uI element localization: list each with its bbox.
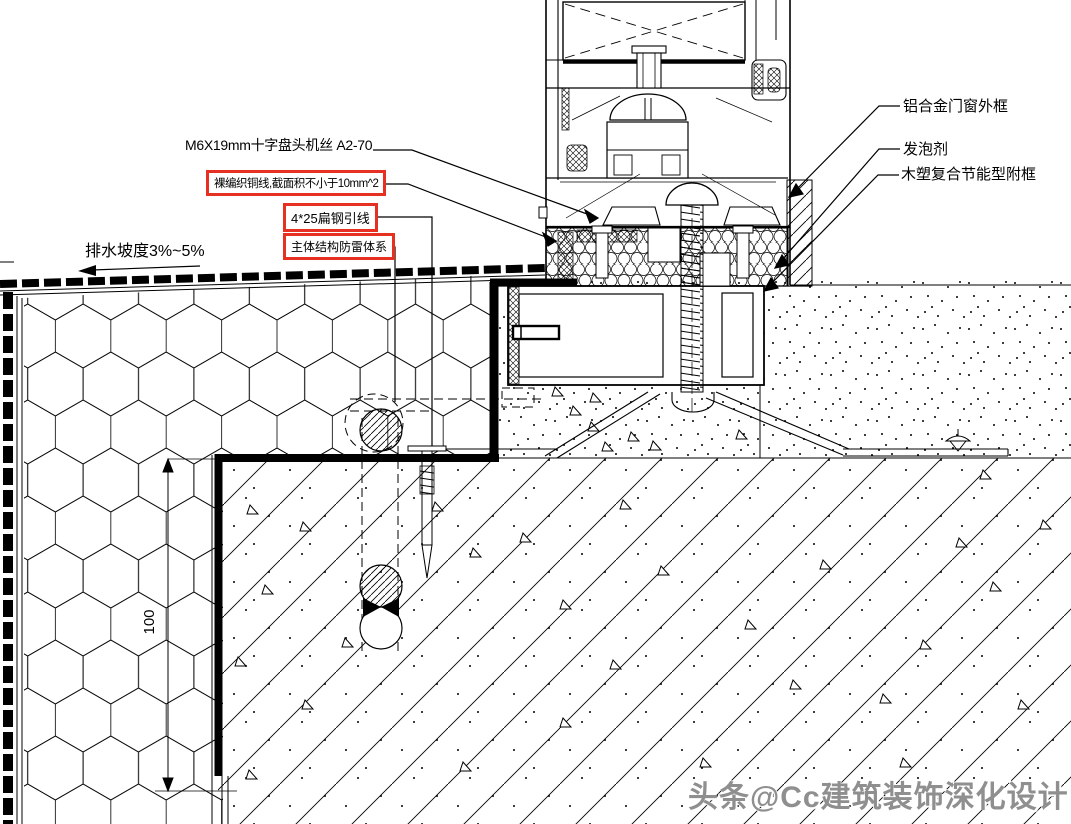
- callout-flat-steel-highlight: 4*25扁钢引线: [283, 203, 378, 232]
- callout-foam: 发泡剂: [903, 141, 948, 158]
- slope-arrow: [78, 265, 200, 276]
- watermark-text: 头条@Cc建筑装饰深化设计: [688, 772, 1069, 816]
- callout-sub-frame: 木塑复合节能型附框: [901, 166, 1036, 183]
- drawing-canvas: [0, 0, 1071, 824]
- cad-detail-drawing: M6X19mm十字盘头机丝 A2-70 裸编织铜线,截面积不小于10mm^2 4…: [0, 0, 1071, 824]
- callout-alu-frame: 铝合金门窗外框: [903, 98, 1008, 115]
- callout-copper-wire-highlight: 裸编织铜线,截面积不小于10mm^2: [206, 170, 386, 196]
- steel-box-section: [508, 286, 764, 385]
- sub-frame-band: [546, 226, 788, 286]
- callout-lightning-system-highlight: 主体结构防雷体系: [283, 233, 395, 260]
- callout-screw-spec: M6X19mm十字盘头机丝 A2-70: [185, 137, 372, 153]
- slope-note: 排水坡度3%~5%: [85, 243, 205, 261]
- dimension-label-100: 100: [141, 602, 175, 642]
